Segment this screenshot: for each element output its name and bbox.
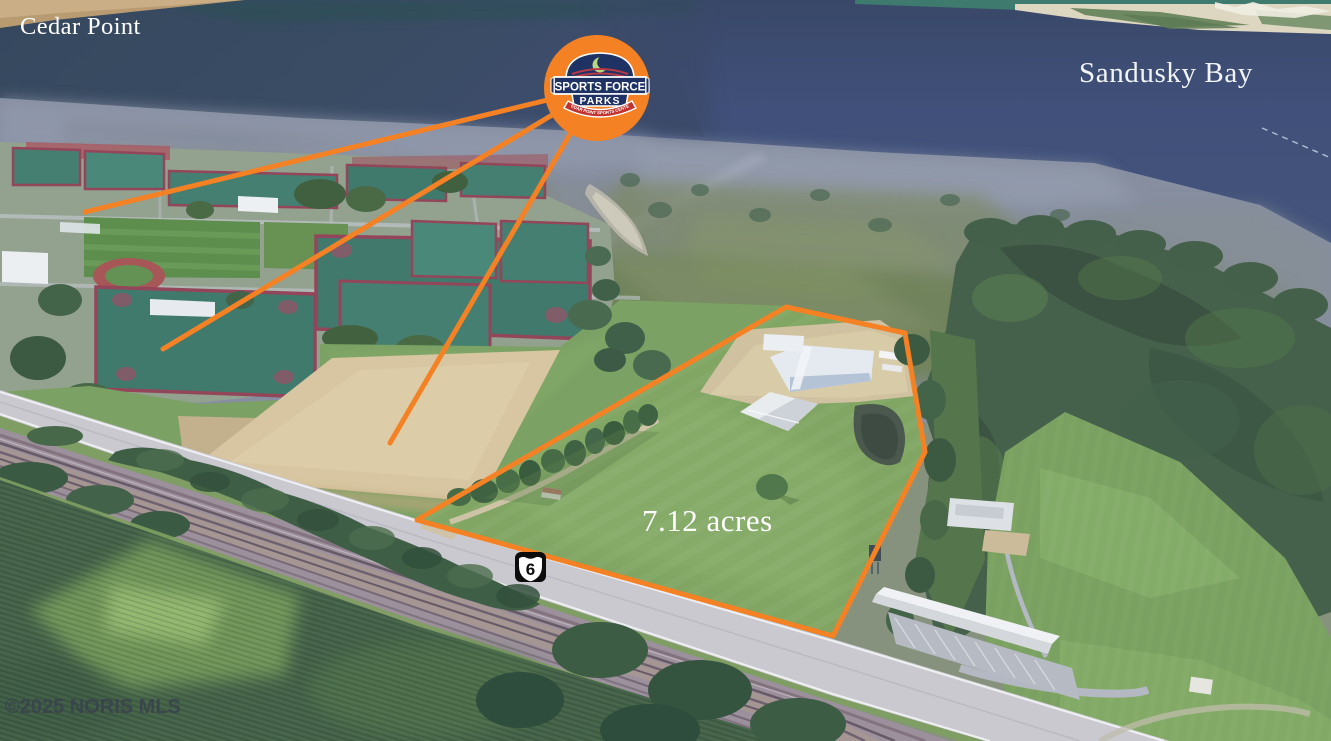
svg-text:PARKS: PARKS [580, 95, 621, 107]
svg-text:©2025 NORIS MLS: ©2025 NORIS MLS [5, 696, 181, 718]
svg-text:Cedar Point: Cedar Point [20, 13, 141, 40]
svg-text:6: 6 [526, 560, 535, 579]
svg-text:SPORTS FORCE: SPORTS FORCE [555, 82, 646, 94]
svg-text:Sandusky Bay: Sandusky Bay [1079, 57, 1253, 89]
svg-text:7.12 acres: 7.12 acres [642, 503, 773, 538]
